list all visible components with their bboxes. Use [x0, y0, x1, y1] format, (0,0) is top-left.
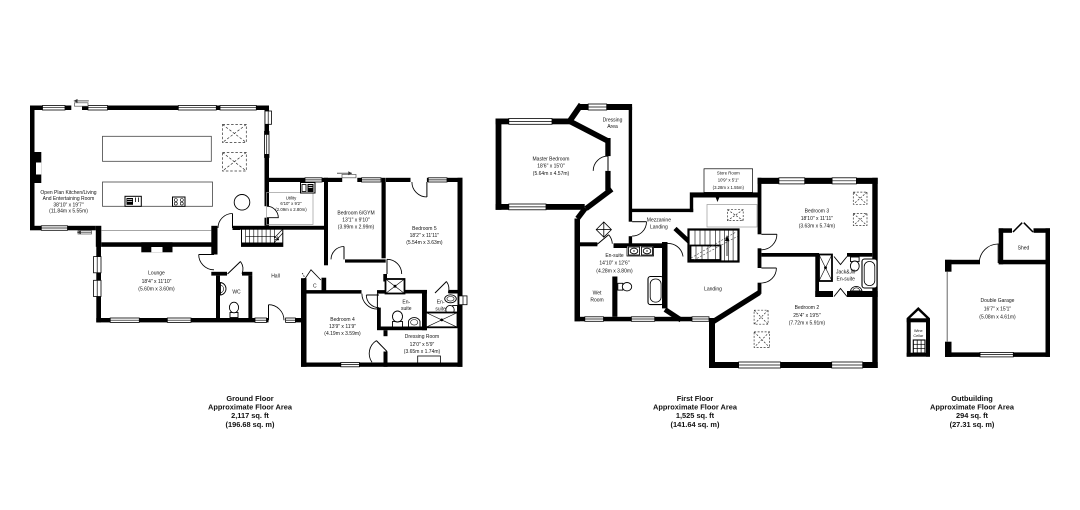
svg-text:Room: Room: [590, 298, 603, 304]
svg-text:(196.68 sq. m): (196.68 sq. m): [226, 420, 275, 429]
svg-text:10'9" x 5'1": 10'9" x 5'1": [718, 178, 740, 183]
svg-text:(5.64m x 4.57m): (5.64m x 4.57m): [533, 171, 570, 177]
svg-text:Bedroom 6/GYM: Bedroom 6/GYM: [337, 211, 374, 217]
svg-text:Landing: Landing: [650, 224, 668, 230]
svg-text:18'10" x 11'11": 18'10" x 11'11": [801, 216, 833, 222]
svg-text:First Floor: First Floor: [677, 394, 714, 403]
svg-text:Approximate Floor Area: Approximate Floor Area: [653, 403, 738, 412]
svg-text:16'7" x 15'1": 16'7" x 15'1": [984, 306, 1012, 312]
svg-text:(3.28m x 1.55m): (3.28m x 1.55m): [713, 185, 745, 190]
svg-text:Ground Floor: Ground Floor: [226, 394, 273, 403]
svg-text:6'10" x 9'2": 6'10" x 9'2": [280, 201, 302, 206]
svg-text:13'9" x 11'9": 13'9" x 11'9": [329, 324, 356, 330]
svg-text:Area: Area: [607, 124, 618, 130]
svg-text:Store Room: Store Room: [717, 171, 740, 176]
svg-text:suite: suite: [401, 306, 412, 312]
svg-text:(5.54m x 3.63m): (5.54m x 3.63m): [406, 240, 443, 246]
svg-text:(4.19m x 3.59m): (4.19m x 3.59m): [324, 331, 361, 337]
svg-text:En-suite: En-suite: [605, 253, 624, 259]
svg-text:Bedroom 3: Bedroom 3: [805, 208, 830, 214]
svg-text:Outbuilding: Outbuilding: [951, 394, 993, 403]
svg-text:Bedroom 4: Bedroom 4: [330, 317, 355, 323]
svg-text:(3.65m x 1.74m): (3.65m x 1.74m): [404, 349, 441, 355]
svg-text:(27.31 sq. m): (27.31 sq. m): [950, 420, 995, 429]
svg-text:(3.99m x 2.99m): (3.99m x 2.99m): [338, 224, 375, 230]
svg-text:(4.28m x 3.80m): (4.28m x 3.80m): [596, 269, 633, 275]
svg-text:Master Bedroom: Master Bedroom: [533, 157, 570, 163]
svg-text:Open Plan Kitchen/Living: Open Plan Kitchen/Living: [40, 190, 96, 196]
svg-text:(141.64 sq. m): (141.64 sq. m): [671, 420, 720, 429]
svg-text:13'1" x 9'10": 13'1" x 9'10": [342, 218, 370, 224]
svg-text:C: C: [313, 284, 317, 290]
svg-text:Wine: Wine: [914, 329, 923, 333]
svg-text:En-suite: En-suite: [837, 277, 856, 283]
svg-text:(5.60m x 3.60m): (5.60m x 3.60m): [138, 287, 175, 293]
svg-text:suite: suite: [435, 307, 446, 313]
svg-text:Approximate Floor Area: Approximate Floor Area: [208, 403, 293, 412]
svg-text:(7.72m x 5.91m): (7.72m x 5.91m): [789, 321, 826, 327]
svg-text:Approximate Floor Area: Approximate Floor Area: [930, 403, 1015, 412]
svg-text:And Entertaining Room: And Entertaining Room: [43, 196, 95, 202]
svg-text:18'2" x 11'11": 18'2" x 11'11": [410, 233, 440, 239]
svg-text:WC: WC: [232, 289, 241, 295]
svg-text:1,525 sq. ft: 1,525 sq. ft: [676, 411, 715, 420]
svg-text:18'4" x 11'10": 18'4" x 11'10": [142, 279, 172, 285]
svg-text:12'0" x 5'9": 12'0" x 5'9": [410, 342, 435, 348]
svg-text:294 sq. ft: 294 sq. ft: [956, 411, 989, 420]
svg-text:(3.63m x 5.74m): (3.63m x 5.74m): [799, 224, 836, 230]
svg-text:Double Garage: Double Garage: [981, 298, 1015, 304]
svg-text:Utility: Utility: [286, 195, 297, 200]
svg-text:14'10" x 12'6": 14'10" x 12'6": [599, 261, 629, 267]
svg-text:(11.84m x 5.55m): (11.84m x 5.55m): [49, 209, 88, 215]
svg-text:38'10" x 19'7": 38'10" x 19'7": [53, 202, 83, 208]
svg-text:En-: En-: [437, 300, 445, 306]
svg-text:Bedroom 5: Bedroom 5: [412, 226, 437, 232]
svg-text:18'6" x 15'0": 18'6" x 15'0": [537, 164, 565, 170]
svg-text:Dressing: Dressing: [603, 118, 623, 124]
svg-text:Dressing Room: Dressing Room: [405, 334, 439, 340]
svg-text:Shed: Shed: [1018, 246, 1030, 252]
svg-text:Cellar: Cellar: [913, 334, 924, 338]
svg-text:Landing: Landing: [704, 286, 722, 292]
svg-text:Wet: Wet: [593, 291, 602, 297]
svg-text:Hall: Hall: [271, 274, 280, 280]
svg-text:(2.09m x 2.80m): (2.09m x 2.80m): [275, 207, 307, 212]
svg-text:Mezzanine: Mezzanine: [647, 218, 671, 224]
svg-text:Bedroom 2: Bedroom 2: [795, 305, 820, 311]
svg-text:2,117 sq. ft: 2,117 sq. ft: [231, 411, 269, 420]
svg-text:(5.08m x 4.61m): (5.08m x 4.61m): [979, 315, 1016, 321]
svg-text:Lounge: Lounge: [148, 271, 165, 277]
svg-text:Jack&Jill: Jack&Jill: [836, 269, 855, 275]
svg-text:25'4" x 19'5": 25'4" x 19'5": [793, 313, 821, 319]
svg-text:En-: En-: [402, 300, 410, 306]
